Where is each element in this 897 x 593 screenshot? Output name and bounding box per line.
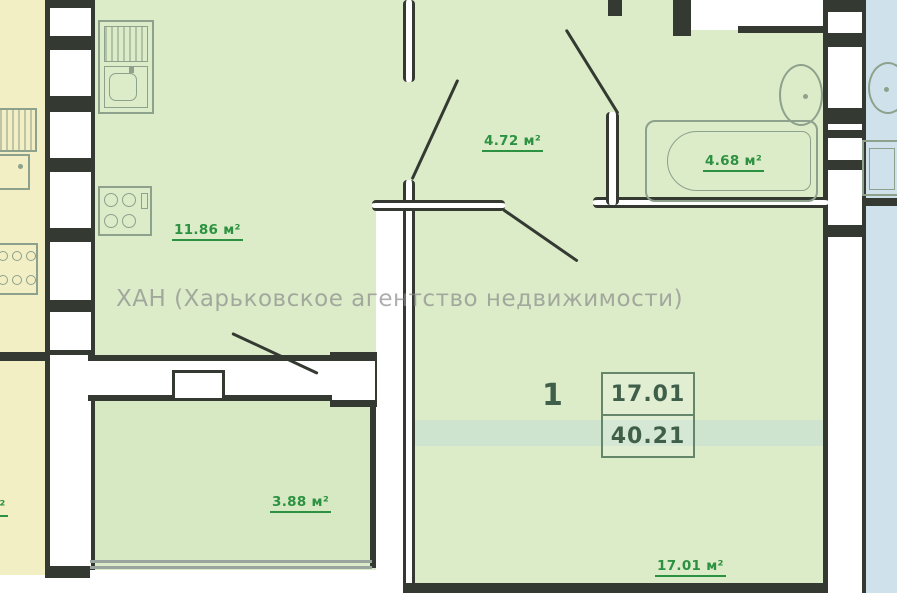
- balcony-area-text: 3.88 м²: [270, 494, 331, 513]
- wall-end-cap: [50, 566, 91, 578]
- hallway-area-label: 4.72 м²: [482, 133, 543, 152]
- balcony-door-frame: [172, 370, 225, 401]
- bathroom-west-wall: [606, 112, 619, 205]
- faucet-dot: [18, 164, 23, 169]
- washbasin-icon: [779, 64, 823, 126]
- stove-icon: [98, 186, 152, 236]
- sink-drainer: [104, 26, 148, 62]
- sink-bowl: [109, 73, 137, 101]
- kitchen-hallway-wall-lower: [403, 180, 415, 590]
- burner: [122, 193, 136, 207]
- bathroom-area-text: 4.68 м²: [703, 153, 764, 172]
- window-mullion: [50, 96, 91, 112]
- living-area-value: 17.01: [603, 374, 693, 416]
- window-mullion: [50, 36, 91, 50]
- floor-plan: 11.86 м² 4.72 м² 4.68 м² 3.88 м² 17.01 м…: [0, 0, 897, 593]
- bathroom-area-label: 4.68 м²: [703, 153, 764, 172]
- window-mullion: [828, 225, 862, 237]
- burner: [12, 275, 22, 285]
- stove-panel: [141, 193, 148, 209]
- top-wall-edge: [738, 26, 823, 33]
- living-area-label: 17.01 м²: [655, 558, 726, 577]
- window-mullion: [828, 0, 862, 12]
- balcony-area-label: 3.88 м²: [270, 494, 331, 513]
- drain-dot: [803, 94, 808, 99]
- balcony-window-line: [90, 560, 372, 563]
- band-top-edge: [88, 355, 375, 361]
- fixture-inner: [869, 148, 895, 190]
- neighbor-fixture-icon: [862, 140, 897, 196]
- kitchen-area-text: 11.86 м²: [172, 222, 243, 241]
- below-balcony-white: [90, 570, 376, 593]
- neighbor-right-wall-line: [864, 198, 897, 206]
- right-exterior-wall: [823, 0, 866, 593]
- hallway-area-text: 4.72 м²: [482, 133, 543, 152]
- neighbor-stove-icon: [0, 243, 38, 295]
- balcony-window-line: [90, 566, 372, 569]
- living-south-wall: [403, 583, 828, 593]
- burner: [0, 251, 8, 261]
- window-mullion: [828, 108, 862, 124]
- hallway-living-wall: [372, 200, 505, 211]
- room-balcony: [95, 400, 372, 562]
- window-mullion: [828, 130, 862, 138]
- apartment-spec-box: 17.01 40.21: [601, 372, 695, 458]
- left-exterior-wall: [45, 0, 95, 578]
- neighbor-wall-stub: [0, 352, 50, 361]
- burner: [104, 193, 118, 207]
- neighbor-sink-icon: [0, 154, 30, 190]
- burner: [104, 214, 118, 228]
- window-mullion: [50, 300, 91, 312]
- window-mullion: [50, 158, 91, 172]
- rooms-count: 1: [542, 378, 563, 413]
- window-mullion: [828, 33, 862, 47]
- living-west-thick-wall: [376, 205, 403, 590]
- window-mullion: [50, 0, 91, 8]
- faucet-dot: [129, 67, 134, 73]
- neighbor-partial-area-text: м²: [0, 498, 8, 517]
- burner: [12, 251, 22, 261]
- kitchen-hallway-wall-upper: [403, 0, 415, 82]
- drain-dot: [884, 87, 889, 92]
- living-area-text: 17.01 м²: [655, 558, 726, 577]
- watermark: ХАН (Харьковское агентство недвижимости): [116, 286, 683, 312]
- wall-stub: [608, 0, 622, 16]
- kitchen-area-label: 11.86 м²: [172, 222, 243, 241]
- window-mullion: [828, 160, 862, 170]
- neighbor-counter-icon: [0, 108, 37, 152]
- burner: [0, 275, 8, 285]
- total-area-value: 40.21: [603, 416, 693, 456]
- kitchen-sink-icon: [98, 20, 154, 114]
- wall-stub: [673, 0, 691, 36]
- burner: [26, 275, 36, 285]
- burner: [122, 214, 136, 228]
- burner: [26, 251, 36, 261]
- neighbor-partial-area-label: м²: [0, 498, 8, 517]
- window-mullion: [50, 228, 91, 242]
- sink-bowl-outer: [104, 66, 148, 108]
